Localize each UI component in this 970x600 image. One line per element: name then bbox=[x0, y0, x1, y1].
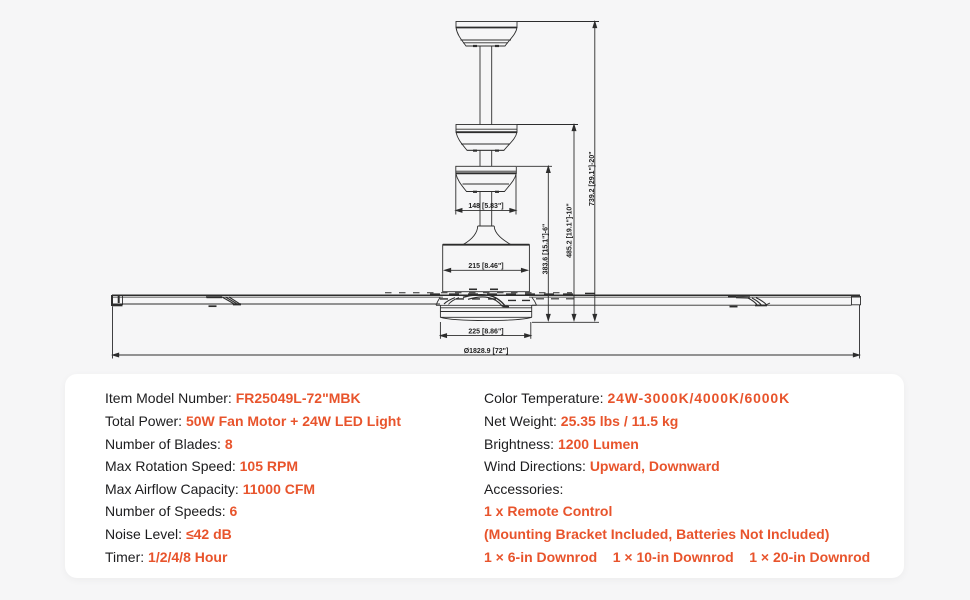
svg-text:383.6 [15.1"]-6": 383.6 [15.1"]-6" bbox=[543, 224, 550, 275]
svg-text:Ø1828.9 [72"]: Ø1828.9 [72"] bbox=[464, 348, 509, 355]
svg-text:485.2 [19.1"]-10": 485.2 [19.1"]-10" bbox=[567, 203, 574, 258]
svg-text:739.2 [29.1"]-20": 739.2 [29.1"]-20" bbox=[589, 151, 596, 206]
svg-text:215 [8.46"]: 215 [8.46"] bbox=[468, 263, 503, 270]
svg-text:148 [5.83"]: 148 [5.83"] bbox=[468, 203, 503, 210]
svg-text:225 [8.86"]: 225 [8.86"] bbox=[468, 328, 503, 335]
